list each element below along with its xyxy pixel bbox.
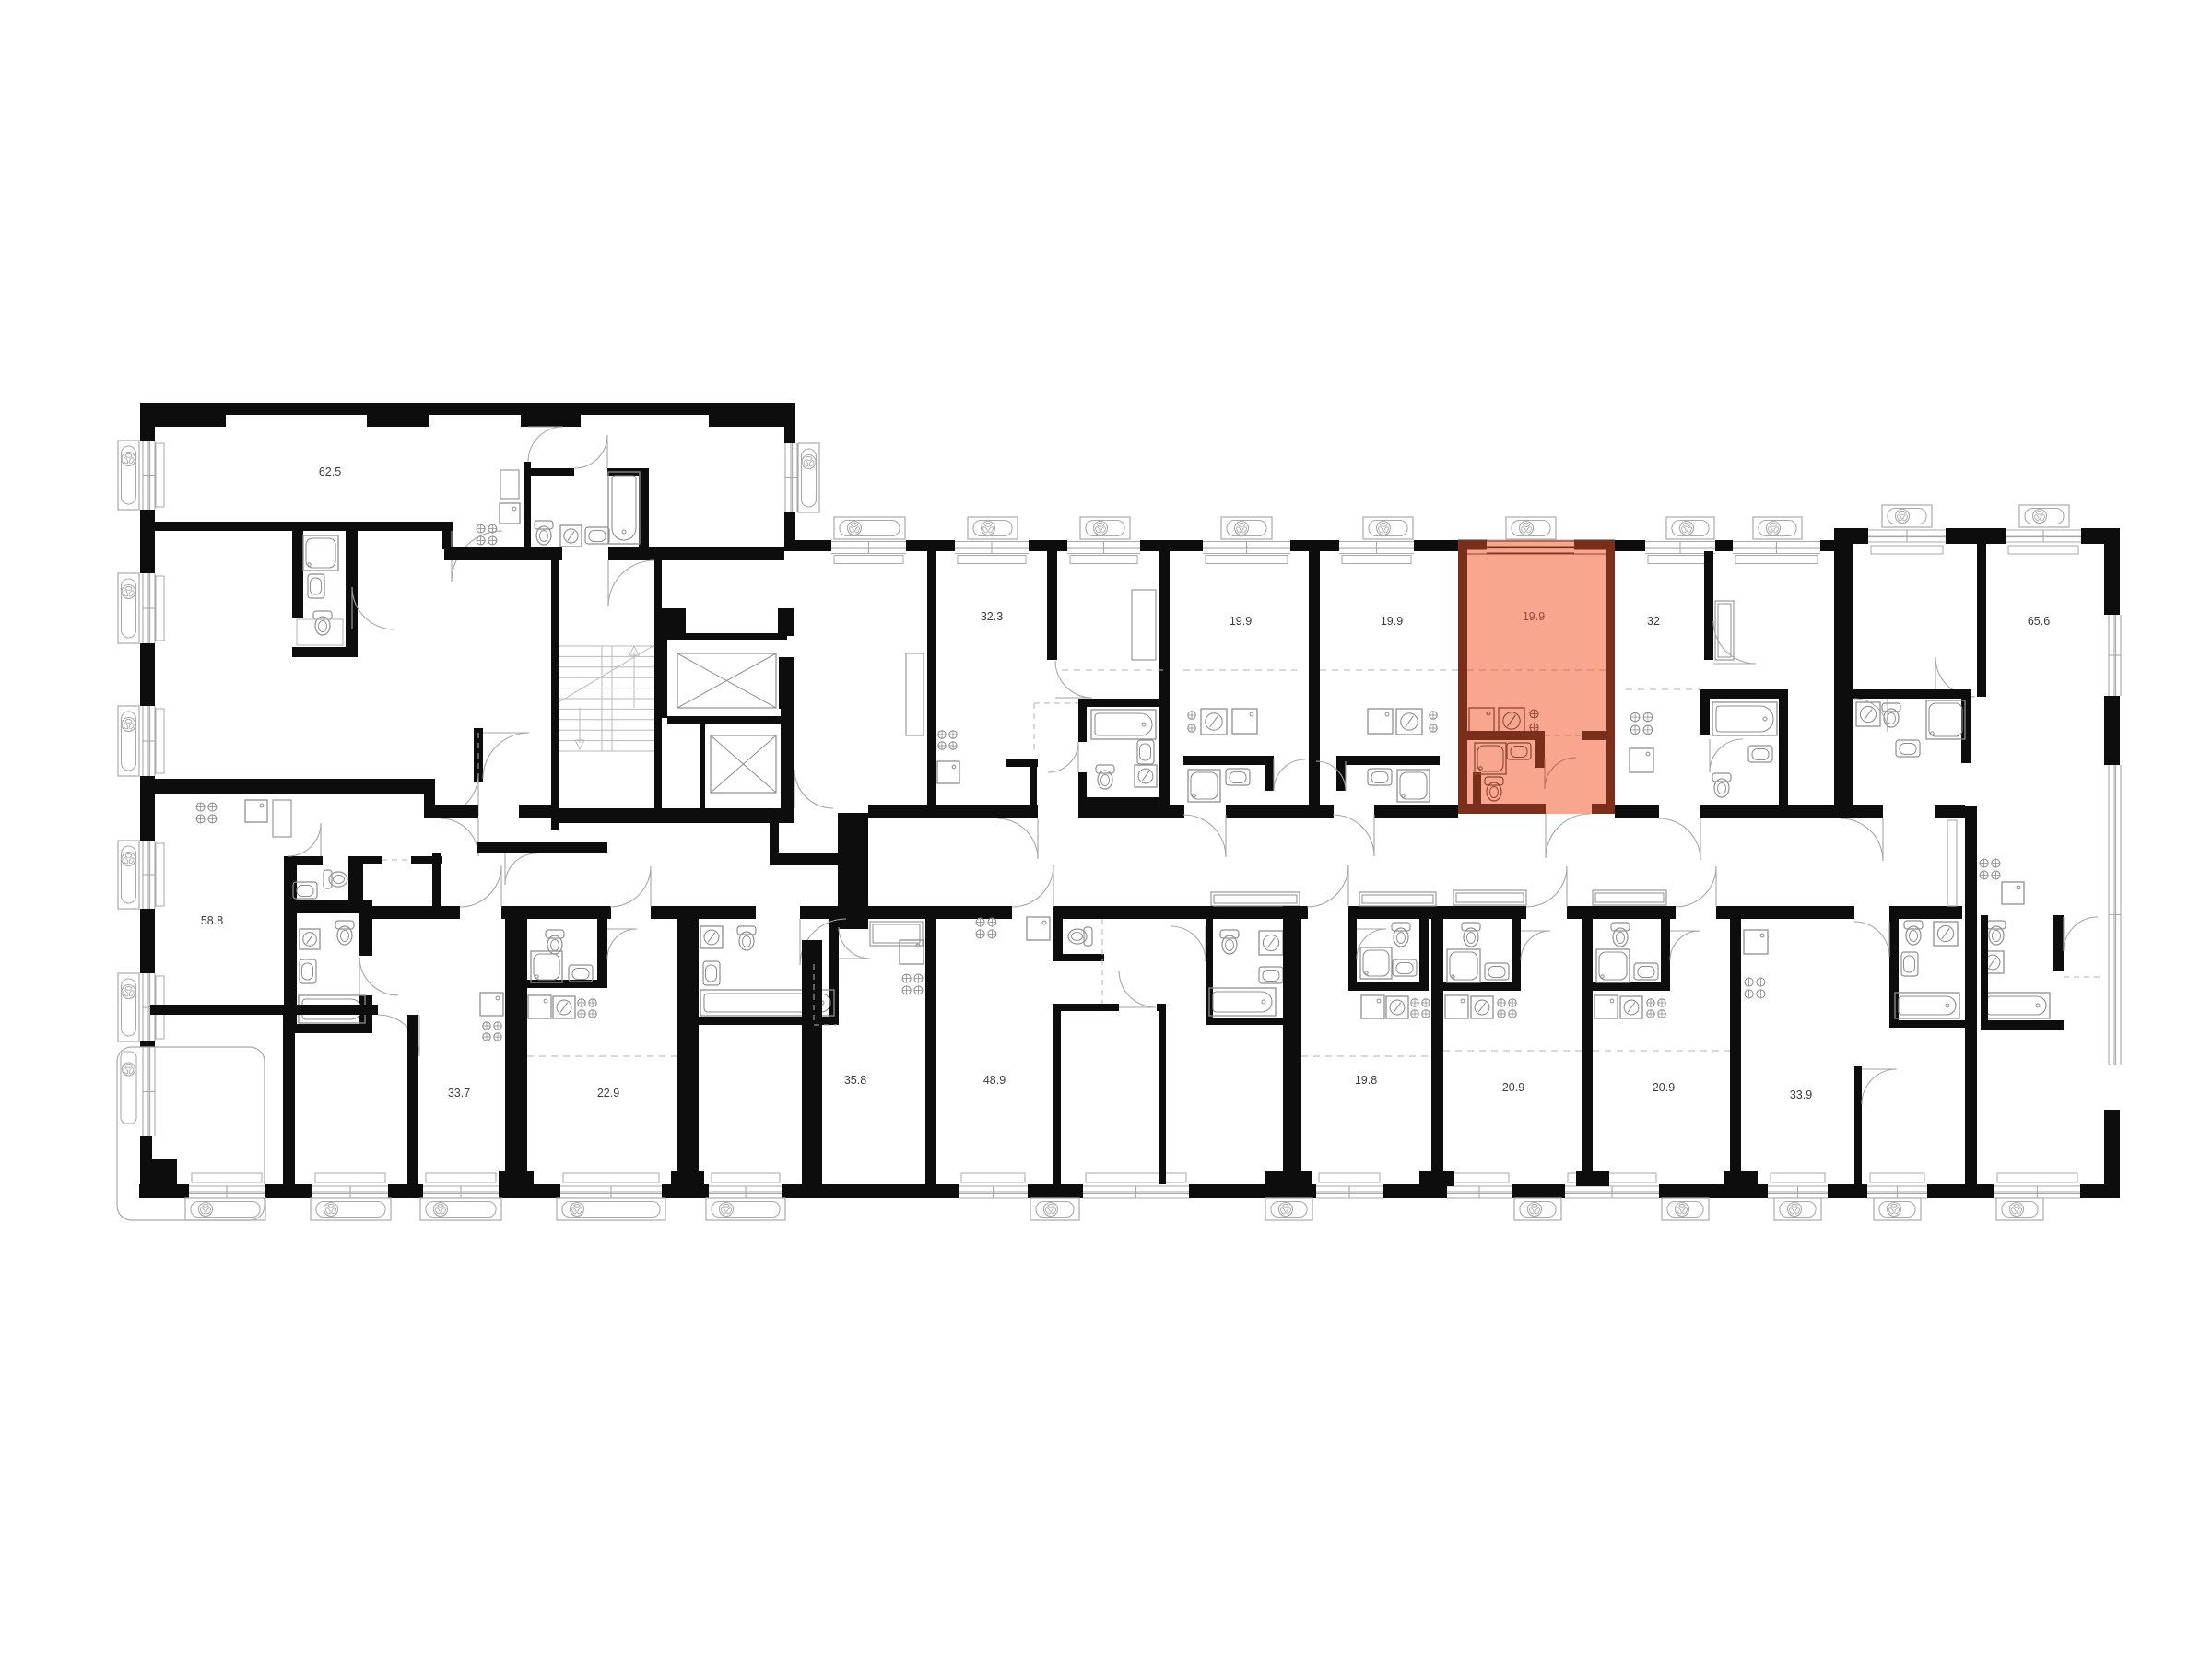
svg-text:58.8: 58.8 — [201, 914, 223, 927]
svg-text:32: 32 — [1647, 615, 1660, 628]
svg-text:19.8: 19.8 — [1355, 1074, 1377, 1087]
svg-text:19.9: 19.9 — [1523, 610, 1545, 623]
svg-text:62.5: 62.5 — [319, 465, 341, 478]
svg-text:20.9: 20.9 — [1653, 1081, 1675, 1094]
svg-text:48.9: 48.9 — [983, 1074, 1006, 1087]
svg-text:19.9: 19.9 — [1230, 615, 1252, 628]
svg-text:65.6: 65.6 — [2028, 615, 2050, 628]
svg-text:20.9: 20.9 — [1502, 1081, 1524, 1094]
svg-text:19.9: 19.9 — [1381, 615, 1403, 628]
svg-text:33.9: 33.9 — [1790, 1088, 1812, 1101]
svg-text:22.9: 22.9 — [597, 1087, 619, 1100]
svg-text:33.7: 33.7 — [448, 1087, 470, 1100]
svg-text:35.8: 35.8 — [844, 1074, 866, 1087]
svg-text:32.3: 32.3 — [981, 610, 1003, 623]
